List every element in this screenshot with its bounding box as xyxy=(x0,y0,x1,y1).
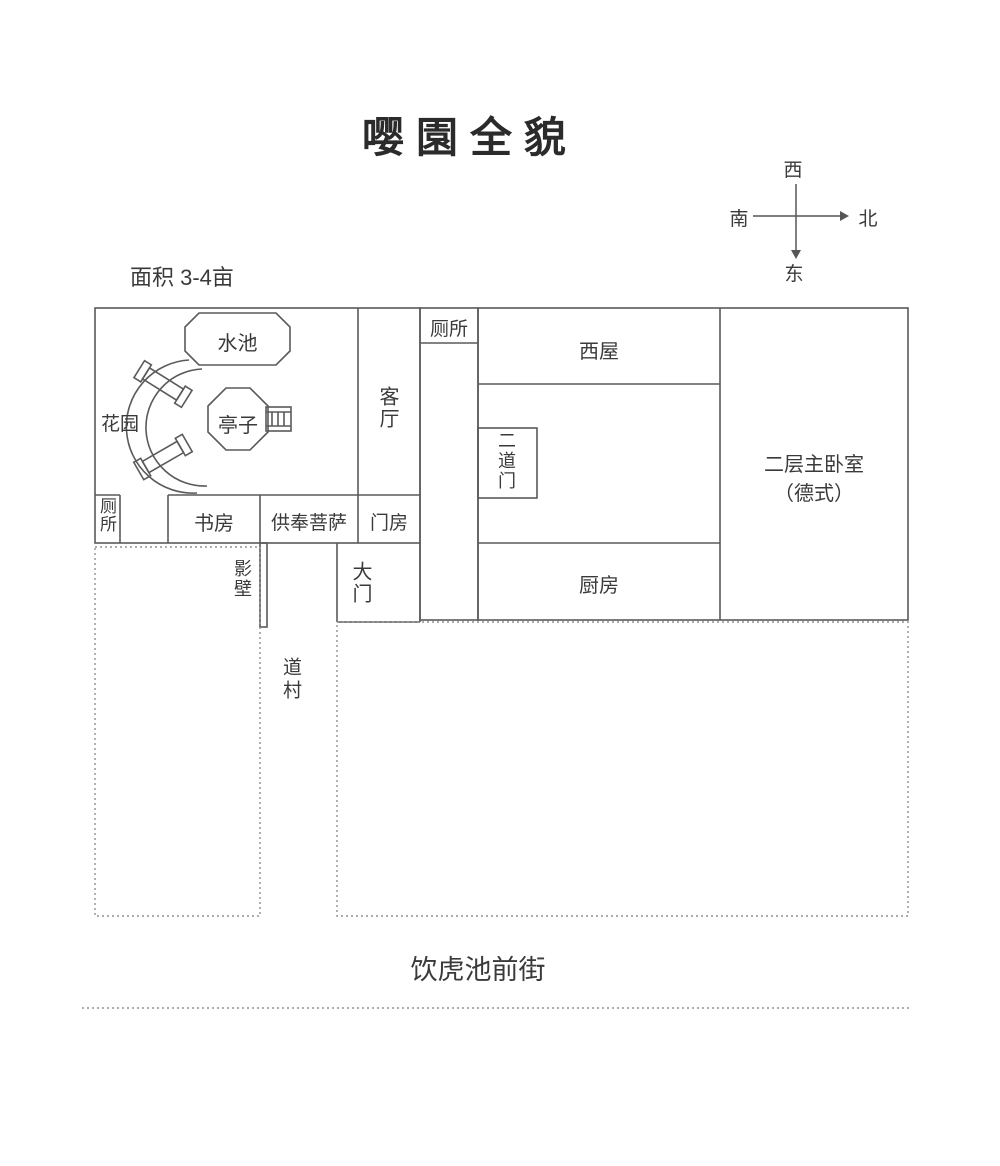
pavilion-label: 亭子 xyxy=(208,409,268,438)
living-room-label: 客厅 xyxy=(377,386,397,430)
corner-toilet-label: 厕所 xyxy=(98,497,115,533)
dotted-boundaries-group xyxy=(82,547,912,1008)
garden-label: 花园 xyxy=(101,409,139,436)
west-yard-dotted-boundary xyxy=(95,547,260,916)
garden-bridge-lower xyxy=(134,434,192,479)
floor-plan-page: 嘤園全貌 面积 3-4亩 西 南 北 东 花园 水池 亭子 客厅 厕所 厕所 西… xyxy=(0,0,1000,1166)
compass-rose xyxy=(753,184,849,259)
master-bedroom-label-line1: 二层主卧室 xyxy=(720,451,908,480)
west-room-label: 西屋 xyxy=(478,335,720,364)
compass-arrow-north-icon xyxy=(840,211,849,221)
area-label: 面积 3-4亩 xyxy=(130,260,234,292)
page-title: 嘤園全貌 xyxy=(320,104,620,165)
gate-house-label: 门房 xyxy=(358,508,420,535)
study-label: 书房 xyxy=(168,507,260,536)
compass-west-label: 西 xyxy=(777,155,809,182)
pavilion-steps-icon xyxy=(266,407,291,431)
second-gate-label: 二道门 xyxy=(497,431,515,491)
corridor-toilet-label: 厕所 xyxy=(420,314,478,341)
pool-label: 水池 xyxy=(185,327,290,356)
screen-wall-label: 影壁 xyxy=(233,559,251,599)
main-gate-label: 大门 xyxy=(350,561,370,605)
kitchen-label: 厨房 xyxy=(478,569,720,598)
compass-east-label: 东 xyxy=(778,259,810,286)
master-bedroom-label: 二层主卧室 （德式） xyxy=(720,451,908,509)
lane-label: 道村 xyxy=(281,657,300,703)
screen-wall-shape xyxy=(260,543,267,627)
compass-south-label: 南 xyxy=(721,204,757,231)
bodhisattva-shrine-label: 供奉菩萨 xyxy=(260,508,358,535)
master-bedroom-label-line2: （德式） xyxy=(720,480,908,509)
street-label: 饮虎池前街 xyxy=(328,948,628,987)
corridor-outline xyxy=(420,308,478,620)
east-yard-dotted-boundary xyxy=(337,622,908,916)
compass-arrow-east-icon xyxy=(791,250,801,259)
compass-north-label: 北 xyxy=(850,204,886,231)
